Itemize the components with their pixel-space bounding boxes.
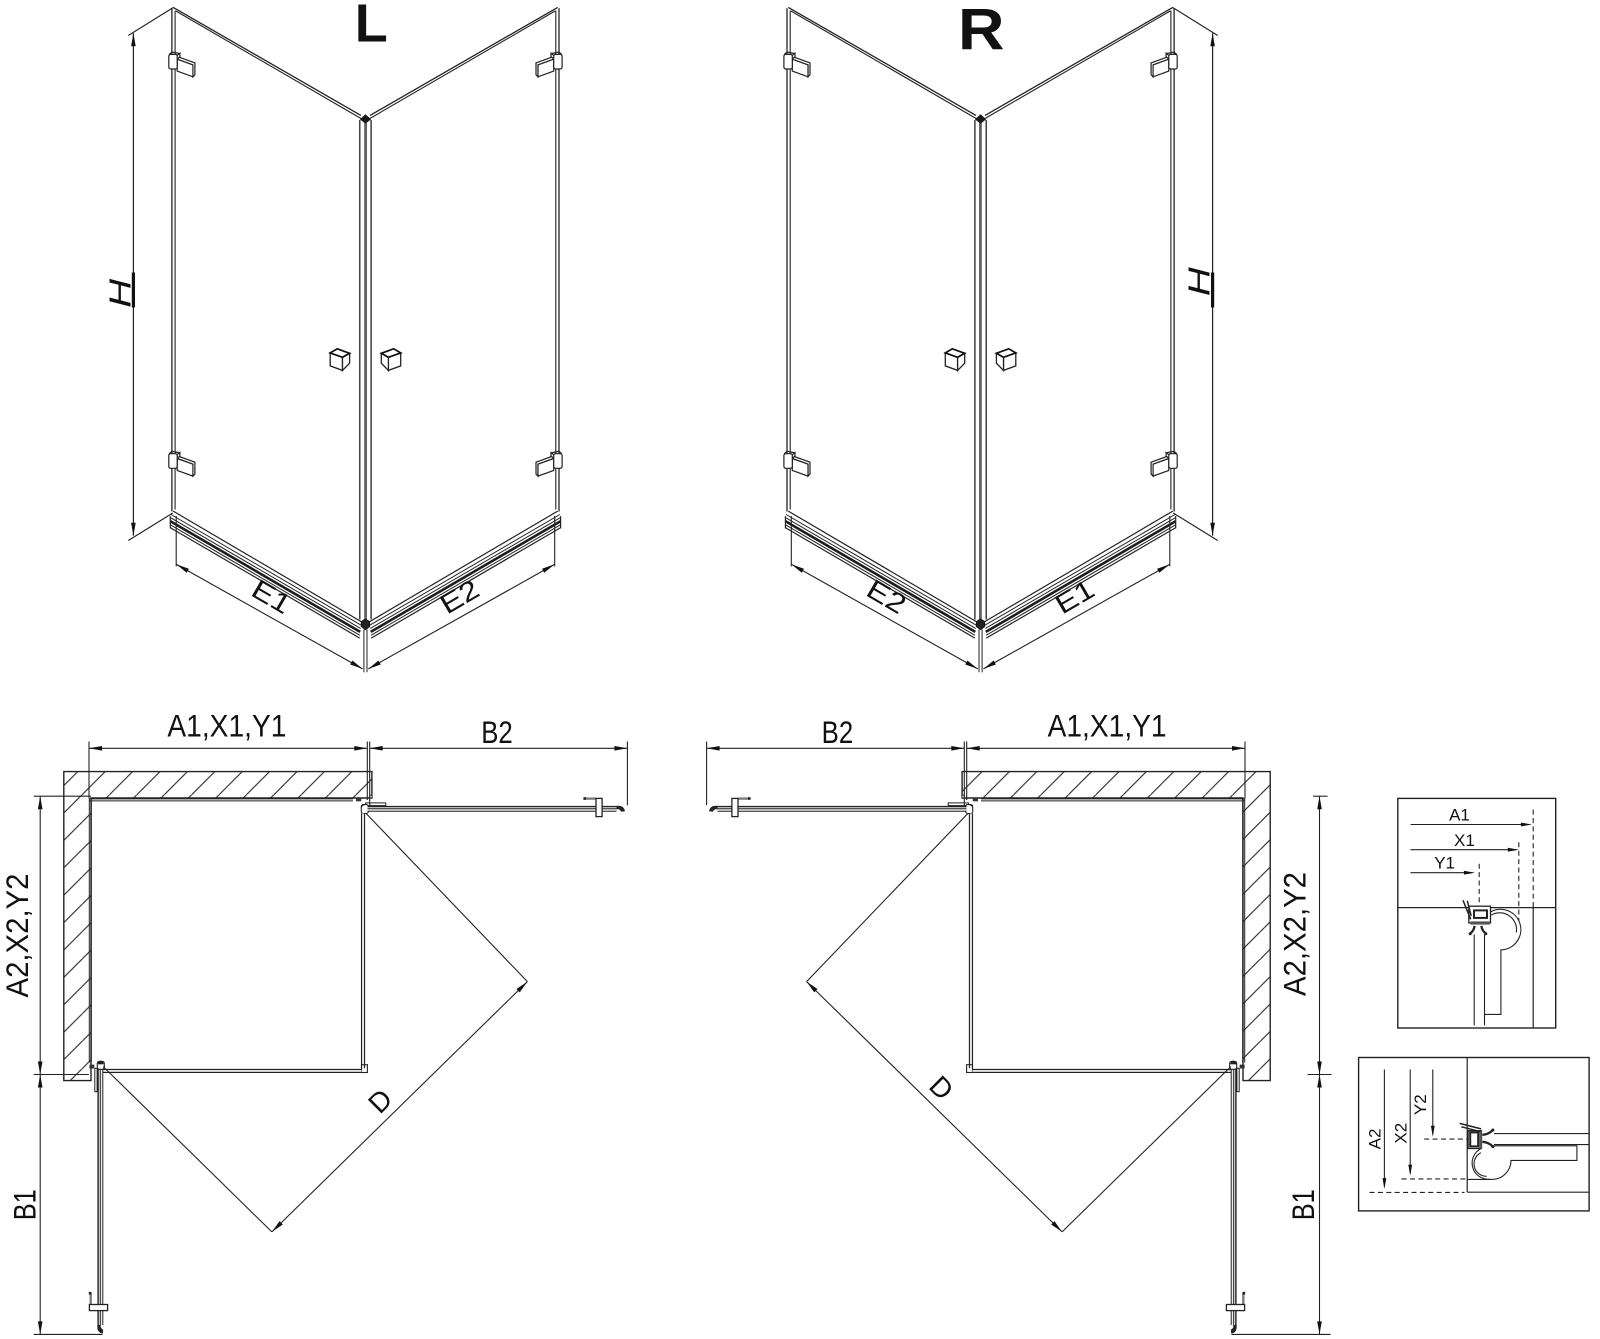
svg-text:R: R (958, 0, 1005, 63)
svg-text:B1: B1 (1285, 1189, 1321, 1220)
svg-text:A1,X1,Y1: A1,X1,Y1 (1048, 707, 1167, 743)
svg-text:B1: B1 (6, 1189, 42, 1220)
svg-text:H: H (1183, 266, 1217, 296)
svg-text:X1: X1 (1454, 831, 1475, 850)
svg-text:B2: B2 (481, 714, 513, 750)
svg-text:A2,X2,Y2: A2,X2,Y2 (0, 874, 35, 998)
svg-text:A2,X2,Y2: A2,X2,Y2 (1277, 872, 1313, 996)
svg-text:A2: A2 (1366, 1129, 1385, 1150)
svg-text:A1: A1 (1449, 805, 1470, 824)
svg-text:Y1: Y1 (1434, 853, 1455, 872)
svg-text:L: L (355, 0, 388, 54)
svg-text:H: H (104, 278, 138, 308)
svg-text:Y2: Y2 (1411, 1094, 1430, 1115)
svg-text:A1,X1,Y1: A1,X1,Y1 (167, 707, 286, 743)
svg-text:X2: X2 (1391, 1123, 1410, 1144)
svg-text:B2: B2 (822, 714, 854, 750)
